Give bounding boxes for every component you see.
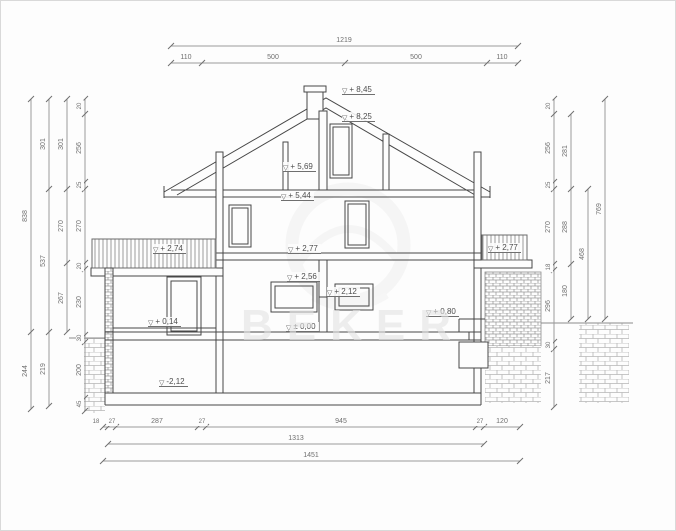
elevation-marker-icon: ▽: [342, 87, 347, 96]
dimension-label: 219: [40, 361, 48, 377]
elevation-value: + 8,25: [349, 112, 371, 121]
dimension-label: 1451: [301, 452, 321, 460]
dimension-label: 230: [76, 294, 84, 310]
dimension-label: 27: [475, 418, 486, 426]
dimension-label: 20: [76, 261, 84, 272]
dimension-label: 287: [149, 418, 165, 426]
elevation-label: ▽+ 5,44: [281, 191, 314, 201]
dimension-label: 270: [76, 218, 84, 234]
elevation-value: + 2,12: [334, 287, 356, 296]
elevation-label: ▽+ 8,25: [342, 112, 375, 122]
elevation-value: + 0,14: [155, 317, 177, 326]
dimension-label: 1313: [286, 435, 306, 443]
elevation-marker-icon: ▽: [283, 164, 288, 173]
dimension-label: 45: [76, 399, 84, 410]
elevation-label: ▽± 0,00: [286, 322, 319, 332]
dimension-label: 1219: [334, 37, 354, 45]
dimension-label: 270: [545, 219, 553, 235]
elevation-label: ▽+ 2,12: [327, 287, 360, 297]
dimension-label: 30: [76, 333, 84, 344]
elevation-value: ± 0,00: [293, 322, 315, 331]
dimension-label: 20: [545, 101, 553, 112]
elevation-label: ▽+ 2,56: [287, 272, 320, 282]
dimension-label: 500: [265, 54, 281, 62]
elevation-label: ▽+ 8,45: [342, 85, 375, 95]
elevation-label: ▽+ 0,80: [426, 307, 459, 317]
elevation-marker-icon: ▽: [286, 324, 291, 333]
dimension-label: 270: [58, 218, 66, 234]
elevation-value: + 2,56: [294, 272, 316, 281]
dimension-label: 301: [40, 136, 48, 152]
elevation-marker-icon: ▽: [288, 246, 293, 255]
dimension-label: 838: [22, 208, 30, 224]
elevation-label: ▽+ 2,77: [488, 243, 521, 253]
dimension-label: 25: [76, 180, 84, 191]
dimension-label: 288: [562, 219, 570, 235]
elevation-value: + 2,77: [495, 243, 517, 252]
dimension-label: 30: [545, 340, 553, 351]
dimension-label: 200: [76, 362, 84, 378]
elevation-value: + 5,44: [288, 191, 310, 200]
dimension-label: 180: [562, 283, 570, 299]
dimension-label: 217: [545, 370, 553, 386]
dimension-label: 110: [494, 54, 509, 62]
dimension-label: 468: [579, 246, 587, 262]
elevation-marker-icon: ▽: [426, 309, 431, 318]
elevation-marker-icon: ▽: [342, 114, 347, 123]
elevation-marker-icon: ▽: [159, 379, 164, 388]
dimension-label: 256: [76, 140, 84, 156]
dimension-label: 27: [107, 418, 118, 426]
dimension-label: 18: [545, 262, 553, 273]
elevation-marker-icon: ▽: [153, 246, 158, 255]
dimension-label: 27: [197, 418, 208, 426]
elevation-value: + 2,74: [160, 244, 182, 253]
dimension-label: 301: [58, 136, 66, 152]
elevation-value: + 0,80: [433, 307, 455, 316]
dimension-label: 537: [40, 253, 48, 269]
elevation-marker-icon: ▽: [287, 274, 292, 283]
dimension-label: 296: [545, 298, 553, 314]
dimension-label: 120: [494, 418, 510, 426]
elevation-value: + 5,69: [290, 162, 312, 171]
architectural-section-drawing: 1219110500500110182728727945271201313145…: [0, 0, 676, 531]
dimension-label: 256: [545, 140, 553, 156]
elevation-marker-icon: ▽: [327, 289, 332, 298]
dimension-label: 945: [333, 418, 349, 426]
dimension-label: 110: [178, 54, 193, 62]
labels-layer: 1219110500500110182728727945271201313145…: [1, 1, 676, 531]
dimension-label: 281: [562, 143, 570, 159]
elevation-value: + 2,77: [295, 244, 317, 253]
dimension-label: 267: [58, 290, 66, 306]
elevation-label: ▽+ 2,77: [288, 244, 321, 254]
elevation-value: + 8,45: [349, 85, 371, 94]
dimension-label: 20: [76, 101, 84, 112]
elevation-label: ▽+ 0,14: [148, 317, 181, 327]
elevation-label: ▽-2,12: [159, 377, 188, 387]
dimension-label: 244: [22, 363, 30, 379]
elevation-label: ▽+ 5,69: [283, 162, 316, 172]
dimension-label: 500: [408, 54, 424, 62]
elevation-value: -2,12: [166, 377, 184, 386]
elevation-marker-icon: ▽: [281, 193, 286, 202]
elevation-label: ▽+ 2,74: [153, 244, 186, 254]
dimension-label: 18: [91, 418, 102, 426]
elevation-marker-icon: ▽: [488, 245, 493, 254]
dimension-label: 25: [545, 180, 553, 191]
elevation-marker-icon: ▽: [148, 319, 153, 328]
dimension-label: 769: [596, 201, 604, 217]
